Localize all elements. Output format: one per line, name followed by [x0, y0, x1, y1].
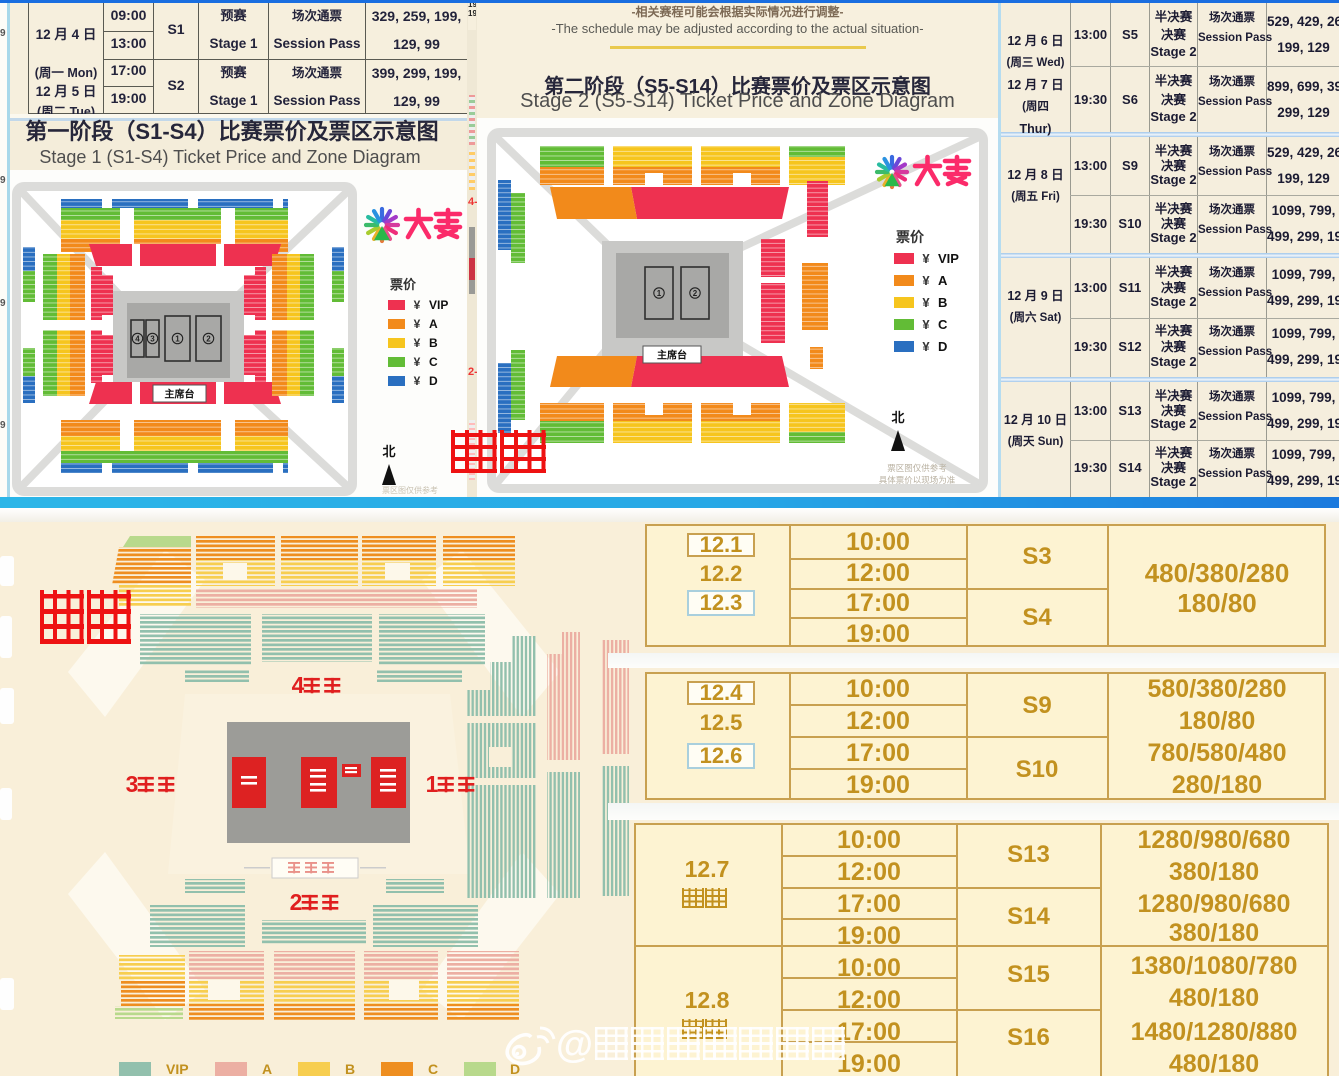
svg-text:3: 3 — [126, 771, 139, 797]
svg-text:¥: ¥ — [922, 273, 930, 288]
svg-text:¥: ¥ — [414, 336, 421, 350]
svg-text:1: 1 — [657, 289, 662, 298]
svg-text:A: A — [429, 317, 438, 331]
svg-text:4: 4 — [135, 335, 140, 344]
svg-text:1: 1 — [175, 335, 180, 344]
svg-text:¥: ¥ — [414, 298, 421, 312]
svg-text:D: D — [938, 339, 947, 354]
svg-text:C: C — [429, 355, 438, 369]
svg-text:北: 北 — [382, 444, 395, 459]
svg-text:B: B — [429, 336, 438, 350]
svg-text:1: 1 — [426, 771, 439, 797]
svg-text:具体票价以现场为准: 具体票价以现场为准 — [879, 475, 956, 485]
svg-text:¥: ¥ — [414, 374, 421, 388]
svg-text:A: A — [938, 273, 948, 288]
svg-text:4: 4 — [292, 672, 305, 698]
svg-text:¥: ¥ — [414, 355, 421, 369]
svg-text:D: D — [429, 374, 438, 388]
svg-text:票价: 票价 — [390, 277, 417, 292]
svg-text:¥: ¥ — [922, 295, 930, 310]
svg-text:VIP: VIP — [429, 298, 448, 312]
svg-text:B: B — [938, 295, 947, 310]
svg-text:票价: 票价 — [896, 229, 925, 245]
svg-text:C: C — [938, 317, 948, 332]
svg-text:¥: ¥ — [922, 251, 930, 266]
svg-text:2: 2 — [290, 889, 303, 915]
svg-text:2: 2 — [693, 289, 698, 298]
svg-text:票区图仅供参考: 票区图仅供参考 — [382, 485, 438, 495]
svg-text:北: 北 — [891, 410, 904, 425]
svg-text:¥: ¥ — [922, 339, 930, 354]
svg-text:主席台: 主席台 — [165, 388, 195, 401]
svg-text:¥: ¥ — [922, 317, 930, 332]
svg-text:主席台: 主席台 — [657, 349, 687, 362]
svg-text:VIP: VIP — [938, 251, 959, 266]
svg-text:票区图仅供参考: 票区图仅供参考 — [887, 463, 947, 473]
svg-text:¥: ¥ — [414, 317, 421, 331]
svg-text:2: 2 — [206, 335, 211, 344]
svg-text:3: 3 — [150, 335, 155, 344]
